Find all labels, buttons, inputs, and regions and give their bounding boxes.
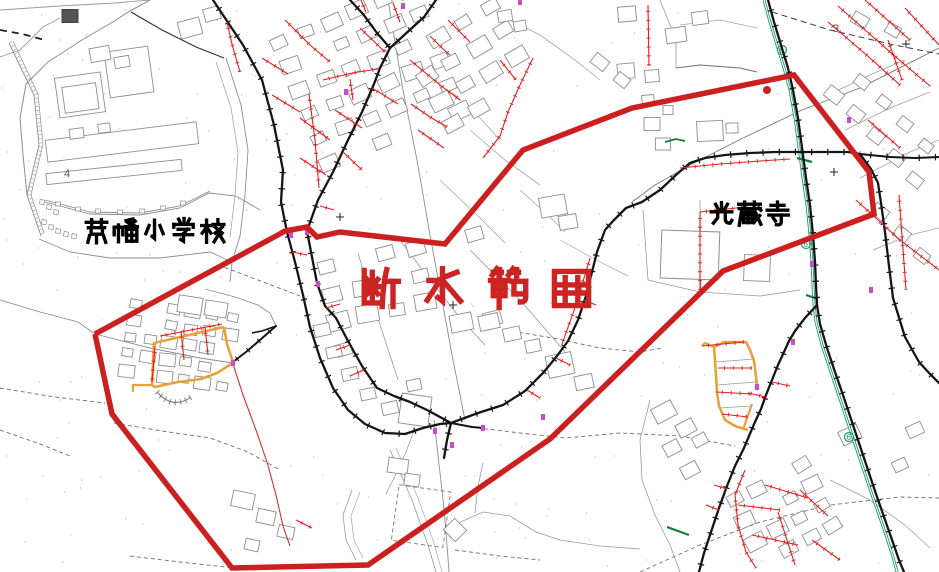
svg-text:6: 6 xyxy=(847,433,852,442)
svg-text:4: 4 xyxy=(64,168,70,180)
svg-text:3: 3 xyxy=(833,23,839,35)
